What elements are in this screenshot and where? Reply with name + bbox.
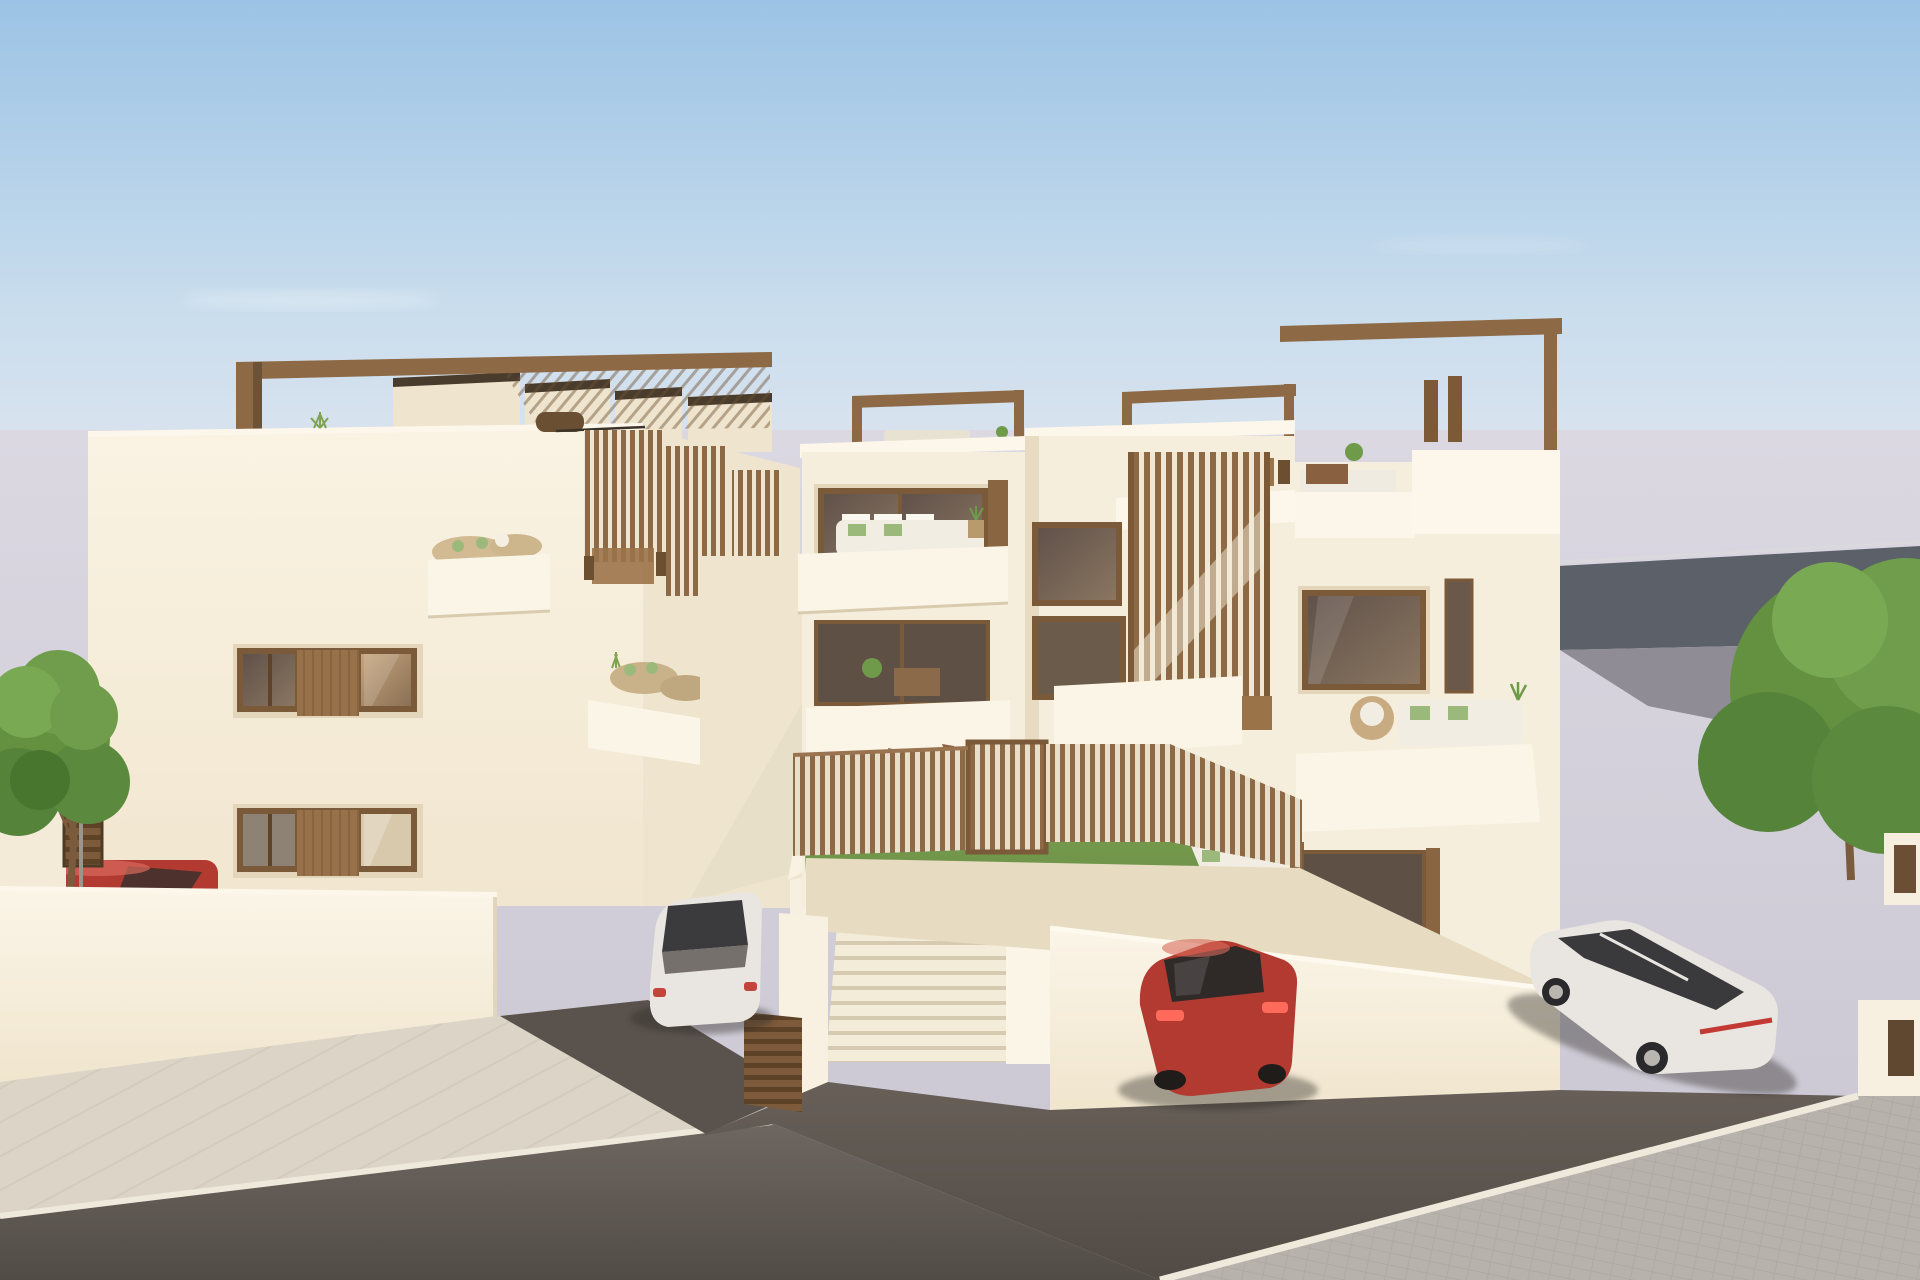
- render-canvas: [0, 0, 1920, 1280]
- white-car-roof-glass: [662, 900, 748, 952]
- cloud-wisp: [180, 290, 440, 310]
- garden-fence: [793, 748, 968, 856]
- slat-stair-tower: [1128, 452, 1270, 702]
- roof-chair: [1278, 460, 1290, 484]
- white-cushion: [495, 533, 509, 547]
- narrow-window: [1446, 580, 1472, 692]
- balcony-parapet: [798, 546, 1008, 612]
- white-car-taillight: [744, 982, 757, 991]
- red-car-wheel: [1154, 1070, 1186, 1090]
- window-band-upper: [233, 644, 423, 718]
- window-mullion: [268, 814, 272, 866]
- sliding-wood-shutter: [297, 810, 359, 876]
- sliding-wood-shutter: [297, 650, 359, 716]
- brown-pillar: [1448, 376, 1462, 442]
- roof-parapet-block: [1412, 450, 1560, 534]
- slat-frame-post: [1264, 452, 1270, 700]
- suv-wheel-hub: [1549, 985, 1563, 999]
- right-edge-gate: [1894, 845, 1916, 893]
- slat-screen: [584, 430, 664, 562]
- balcony-parapet: [1296, 744, 1540, 832]
- terrace-plant: [862, 658, 882, 678]
- green-cushion: [884, 524, 902, 536]
- architectural-rendering: [0, 0, 1920, 1280]
- dining-table: [592, 548, 654, 584]
- red-car-taillight: [1262, 1002, 1288, 1013]
- ground-terrace-a: [806, 622, 1010, 754]
- green-cushion: [1202, 850, 1220, 862]
- garden-fence: [1046, 744, 1170, 842]
- tree-canopy-highlight: [1772, 562, 1888, 678]
- window-band-lower: [233, 804, 423, 878]
- green-cushion: [452, 540, 464, 552]
- bottom-right-door: [1888, 1020, 1914, 1076]
- green-cushion: [1448, 706, 1468, 720]
- roof-bench: [1306, 464, 1348, 484]
- roof-highlight: [1162, 939, 1230, 957]
- tree-canopy-shade: [10, 750, 70, 810]
- green-cushion: [1410, 706, 1430, 720]
- window-glass: [1038, 528, 1116, 600]
- green-cushion: [624, 664, 636, 676]
- tree-canopy-lobe: [50, 682, 118, 750]
- brown-pillar: [1424, 380, 1438, 442]
- slat-frame-post: [1128, 452, 1134, 700]
- red-car-taillight: [1156, 1010, 1184, 1021]
- roof-planter: [996, 426, 1008, 438]
- green-cushion: [646, 662, 658, 674]
- dining-chair: [656, 552, 666, 576]
- cloud-wisp: [1370, 237, 1590, 253]
- green-cushion: [476, 537, 488, 549]
- suv-wheel-hub: [1644, 1050, 1660, 1066]
- plant-pot: [968, 520, 984, 538]
- red-car-wheel: [1258, 1064, 1286, 1084]
- window-mullion: [268, 654, 272, 706]
- wall-corner-shade: [493, 897, 497, 1018]
- roof-parapet-low: [1295, 492, 1415, 538]
- roof-plant: [1345, 443, 1363, 461]
- green-cushion: [848, 524, 866, 536]
- dining-chair: [584, 556, 594, 580]
- white-car-taillight: [653, 988, 666, 997]
- chair-cushion: [1360, 702, 1384, 726]
- terrace-table: [894, 668, 940, 696]
- garden-gate: [968, 742, 1046, 852]
- left-building: [88, 352, 800, 906]
- terrace-parapet: [428, 554, 550, 616]
